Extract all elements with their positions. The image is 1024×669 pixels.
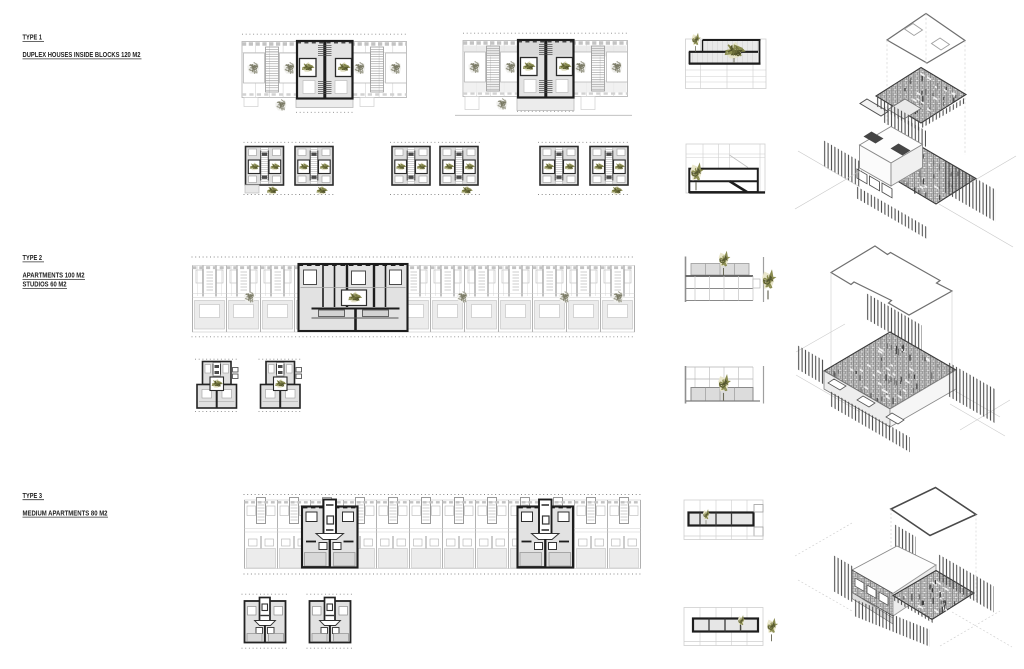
svg-text:STUDIOS 60 M2: STUDIOS 60 M2 — [23, 280, 67, 289]
svg-text:DUPLEX HOUSES INSIDE BLOCKS 1: DUPLEX HOUSES INSIDE BLOCKS 120 M2 — [23, 50, 141, 59]
svg-text:TYPE 2: TYPE 2 — [23, 253, 43, 262]
svg-text:TYPE 3: TYPE 3 — [23, 491, 43, 500]
svg-text:MEDIUM APARTMENTS 80 M2: MEDIUM APARTMENTS 80 M2 — [23, 508, 108, 517]
svg-text:TYPE 1: TYPE 1 — [23, 33, 43, 42]
svg-text:APARTMENTS 100 M2: APARTMENTS 100 M2 — [23, 271, 85, 280]
